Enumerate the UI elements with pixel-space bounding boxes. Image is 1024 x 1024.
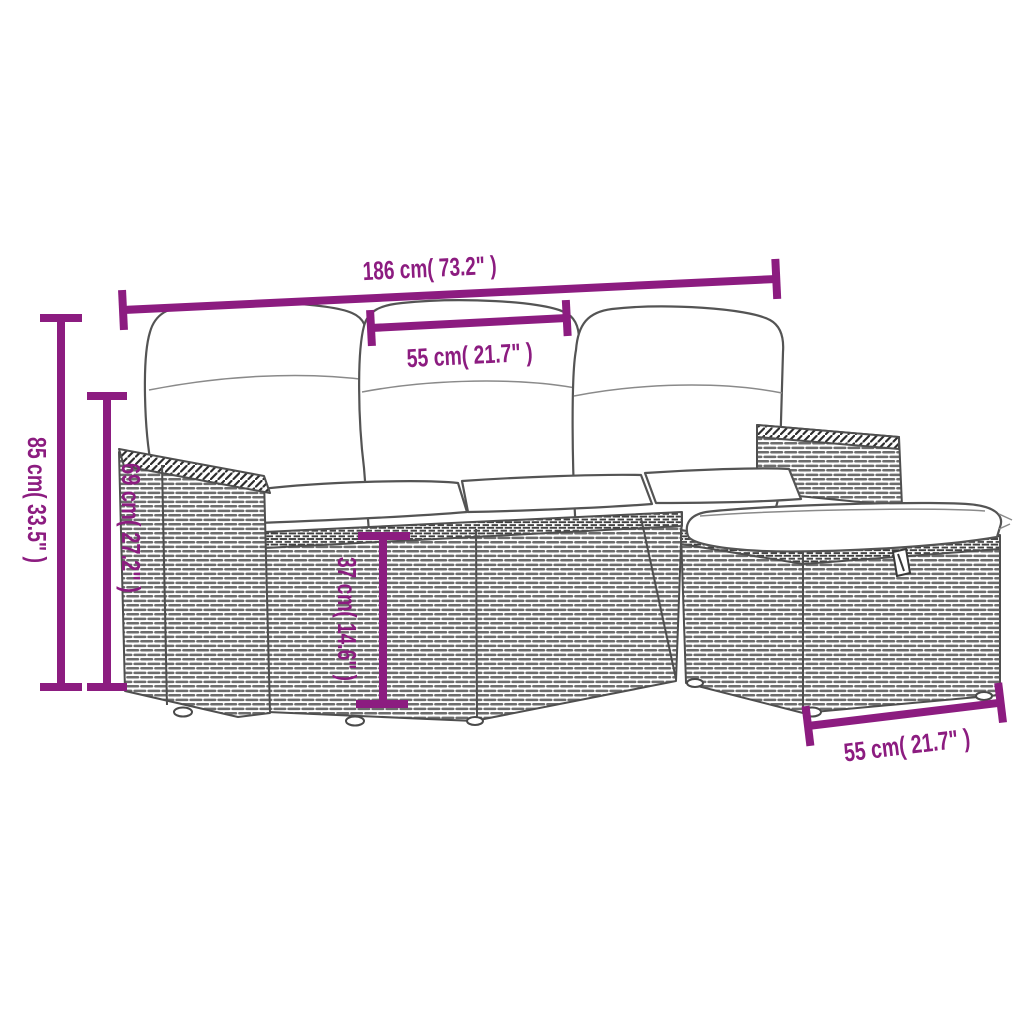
sofa-base xyxy=(264,512,682,721)
dim-tick xyxy=(998,683,1003,723)
dim-tick xyxy=(122,290,124,330)
dim-tick xyxy=(775,259,777,299)
dimension-label-backrest-height: 69 cm( 27.2" ) xyxy=(116,463,146,593)
dimension-label-ottoman-width: 55 cm( 21.7" ) xyxy=(842,723,972,768)
dim-tick xyxy=(566,300,568,336)
sofa-illustration xyxy=(119,300,1012,725)
dimension-label-seat-height: 37 cm( 14.6" ) xyxy=(332,557,362,681)
dimension-diagram-svg: 186 cm( 73.2" ) 55 cm( 21.7" ) 85 cm( 33… xyxy=(0,0,1024,1024)
dimension-label-overall-width: 186 cm( 73.2" ) xyxy=(362,250,497,286)
dim-tick xyxy=(370,310,372,346)
seat-cushion-middle xyxy=(462,475,652,512)
dimension-label-total-height: 85 cm( 33.5" ) xyxy=(22,437,52,563)
dim-tick xyxy=(806,706,811,746)
seat-cushion-right xyxy=(645,468,801,503)
diagram-stage: 186 cm( 73.2" ) 55 cm( 21.7" ) 85 cm( 33… xyxy=(0,0,1024,1024)
dim-total-height: 85 cm( 33.5" ) xyxy=(22,318,82,687)
ottoman-lid-handle xyxy=(893,549,910,576)
ottoman xyxy=(681,503,1012,713)
dimension-label-seat-module-width: 55 cm( 21.7" ) xyxy=(406,337,533,373)
